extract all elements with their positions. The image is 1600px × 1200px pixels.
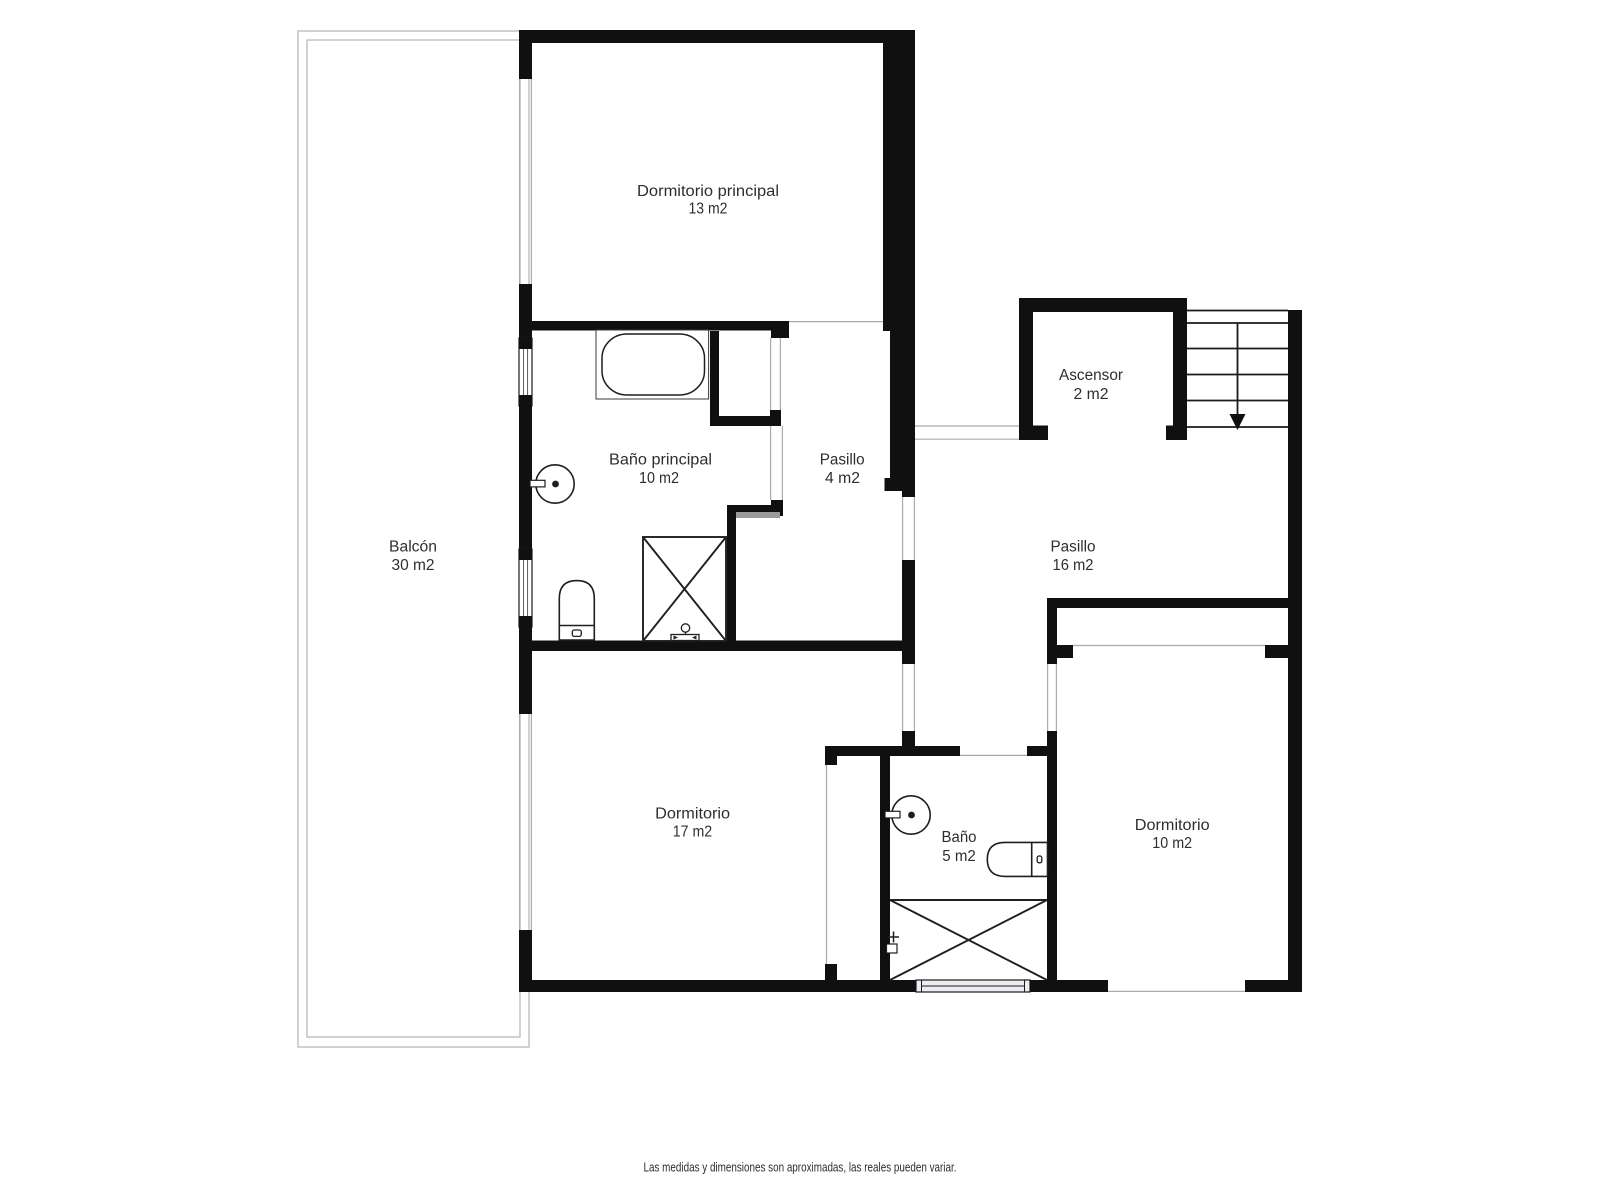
svg-text:5 m2: 5 m2 xyxy=(942,848,976,865)
svg-text:Dormitorio: Dormitorio xyxy=(1135,817,1210,834)
svg-text:Balcón: Balcón xyxy=(389,539,437,556)
svg-text:Dormitorio principal: Dormitorio principal xyxy=(637,183,779,200)
svg-text:30 m2: 30 m2 xyxy=(392,557,435,574)
svg-text:Pasillo: Pasillo xyxy=(1051,539,1096,556)
svg-text:17 m2: 17 m2 xyxy=(673,824,712,841)
svg-text:16 m2: 16 m2 xyxy=(1053,557,1094,574)
svg-text:Dormitorio: Dormitorio xyxy=(655,806,730,823)
svg-text:10 m2: 10 m2 xyxy=(639,470,679,487)
svg-text:Baño: Baño xyxy=(942,829,977,846)
svg-text:10 m2: 10 m2 xyxy=(1152,835,1192,852)
svg-text:2 m2: 2 m2 xyxy=(1074,386,1109,403)
svg-text:13 m2: 13 m2 xyxy=(689,201,728,218)
svg-text:4 m2: 4 m2 xyxy=(825,470,860,487)
svg-text:Las medidas y dimensiones son: Las medidas y dimensiones son aproximada… xyxy=(644,1160,957,1175)
svg-text:Baño principal: Baño principal xyxy=(609,452,712,469)
svg-text:Ascensor: Ascensor xyxy=(1059,367,1123,384)
svg-text:Pasillo: Pasillo xyxy=(820,452,865,469)
